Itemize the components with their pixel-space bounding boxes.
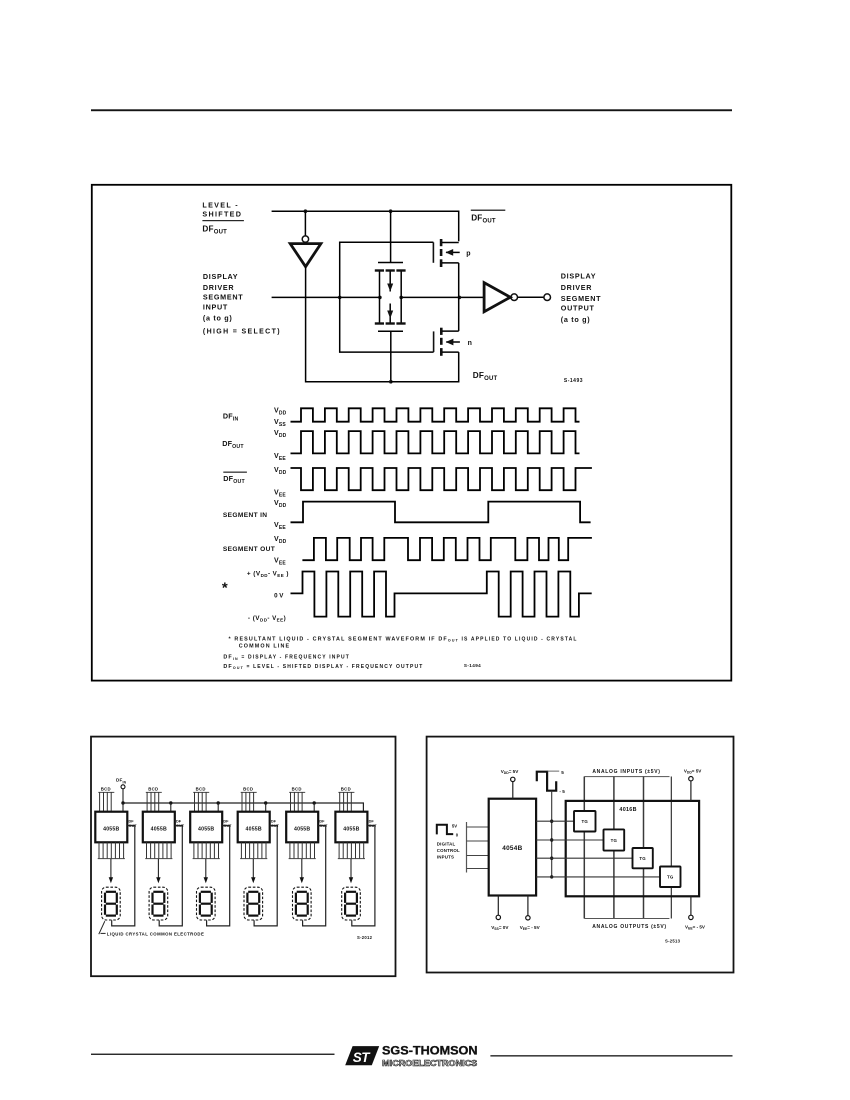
svg-text:TG: TG [611,838,618,843]
svg-text:p: p [466,250,470,257]
svg-text:DIGITAL: DIGITAL [437,841,456,846]
svg-text:ST: ST [353,1050,372,1065]
svg-text:5V: 5V [452,823,457,828]
svg-text:VSS= 0V: VSS= 0V [491,925,509,931]
svg-text:BCD: BCD [148,787,158,792]
svg-text:DFOUT: DFOUT [222,439,244,450]
svg-text:4055B: 4055B [151,826,167,832]
svg-text:DISPLAY: DISPLAY [203,272,238,281]
svg-text:BCD: BCD [196,787,206,792]
svg-text:BCD: BCD [243,787,253,792]
svg-text:0: 0 [456,833,459,838]
svg-text:VEE: VEE [274,522,286,531]
svg-text:TG: TG [639,856,646,861]
svg-text:VEE: VEE [274,490,286,499]
svg-text:(HIGH = SELECT): (HIGH = SELECT) [203,329,281,336]
svg-text:BCD: BCD [292,787,302,792]
svg-text:DFIN: DFIN [116,778,127,785]
svg-text:S-1493: S-1493 [564,378,583,384]
svg-text:BCD: BCD [101,787,111,792]
svg-text:INPUT: INPUT [203,302,228,311]
svg-text:* RESULTANT LIQUID - CRYSTAL: * RESULTANT LIQUID - CRYSTAL SEGMENT WAV… [229,636,578,642]
svg-text:4055B: 4055B [198,826,214,832]
svg-text:VEE= - 5V: VEE= - 5V [685,925,706,931]
svg-text:5: 5 [561,770,564,775]
svg-text:VDD: VDD [274,408,287,417]
svg-text:S-2513: S-2513 [665,938,681,943]
svg-text:SEGMENT IN: SEGMENT IN [223,512,268,519]
svg-text:4055B: 4055B [343,826,359,832]
svg-text:DFOUT: DFOUT [473,371,498,382]
svg-text:VDD= 5V: VDD= 5V [684,769,702,775]
svg-text:4054B: 4054B [502,845,522,852]
svg-text:INPUTS: INPUTS [437,854,454,859]
svg-text:DFOUT: DFOUT [202,225,227,236]
svg-text:VDD: VDD [274,500,287,509]
svg-text:VDD= 5V: VDD= 5V [501,769,519,775]
svg-text:4016B: 4016B [619,807,636,813]
svg-text:TG: TG [667,875,674,880]
svg-text:LEVEL -: LEVEL - [202,201,239,210]
svg-text:LIQUID CRYSTAL COMMON ELECT: LIQUID CRYSTAL COMMON ELECTRODE [107,931,204,936]
svg-text:COMMON LINE: COMMON LINE [239,644,291,650]
svg-text:ANALOG OUTPUTS (±5V): ANALOG OUTPUTS (±5V) [592,924,667,930]
svg-text:4055B: 4055B [294,826,310,832]
svg-text:4055B: 4055B [103,826,119,832]
svg-text:VSS: VSS [274,419,286,428]
svg-text:DFOUT = LEVEL - SHIFTED DISP: DFOUT = LEVEL - SHIFTED DISPLAY - FREQUE… [223,664,423,670]
svg-text:- 5: - 5 [559,789,565,794]
svg-text:DFIN = DISPLAY - FREQUENCY I: DFIN = DISPLAY - FREQUENCY INPUT [223,655,350,661]
svg-text:ANALOG INPUTS (±5V): ANALOG INPUTS (±5V) [592,769,660,775]
svg-text:DFOUT: DFOUT [471,214,496,225]
svg-text:S-1494: S-1494 [464,663,481,668]
svg-text:SHIFTED: SHIFTED [202,210,242,219]
svg-text:- (VDD- VEE): - (VDD- VEE) [248,615,286,623]
svg-text:(a to g): (a to g) [203,314,233,323]
svg-text:VEE: VEE [274,558,286,567]
svg-text:SEGMENT: SEGMENT [203,292,243,301]
svg-text:S-2012: S-2012 [357,935,373,940]
svg-text:DFOUT: DFOUT [223,474,245,485]
svg-text:DISPLAY: DISPLAY [561,272,596,281]
svg-text:VDD: VDD [274,536,287,545]
svg-text:OUTPUT: OUTPUT [561,304,595,313]
svg-text:TG: TG [582,819,589,824]
svg-text:SGS-THOMSON: SGS-THOMSON [382,1043,478,1057]
svg-text:MICROELECTRONICS: MICROELECTRONICS [382,1058,477,1068]
svg-text:DFIN: DFIN [223,412,239,423]
svg-text:VDD: VDD [274,467,287,476]
svg-text:(a to g): (a to g) [561,315,591,324]
svg-text:0 V: 0 V [274,592,284,599]
svg-text:DRIVER: DRIVER [203,283,234,292]
svg-text:DRIVER: DRIVER [561,283,592,292]
svg-text:CONTROL: CONTROL [437,848,460,853]
svg-text:BCD: BCD [341,787,351,792]
svg-text:*: * [222,580,228,597]
svg-text:SEGMENT OUT: SEGMENT OUT [223,546,275,553]
svg-text:4055B: 4055B [246,826,262,832]
svg-text:VDD: VDD [274,430,287,439]
svg-text:VEE= - 5V: VEE= - 5V [520,925,541,931]
svg-text:+ (VDD- VEE ): + (VDD- VEE ) [247,571,289,579]
svg-text:VEE: VEE [274,453,286,462]
svg-text:n: n [468,340,472,347]
svg-text:SEGMENT: SEGMENT [561,294,601,303]
